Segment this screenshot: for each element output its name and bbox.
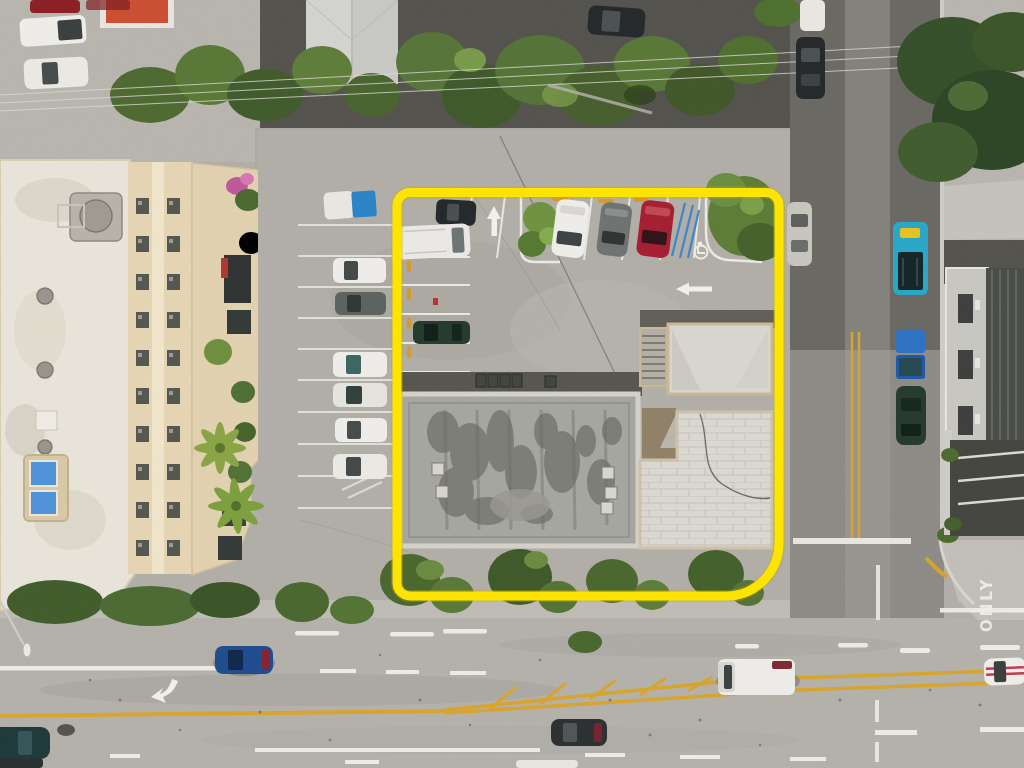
photo-grain: [0, 0, 1024, 768]
aerial-photo: ONLY: [0, 0, 1024, 768]
screenshot-root: ONLY: [0, 0, 1024, 768]
